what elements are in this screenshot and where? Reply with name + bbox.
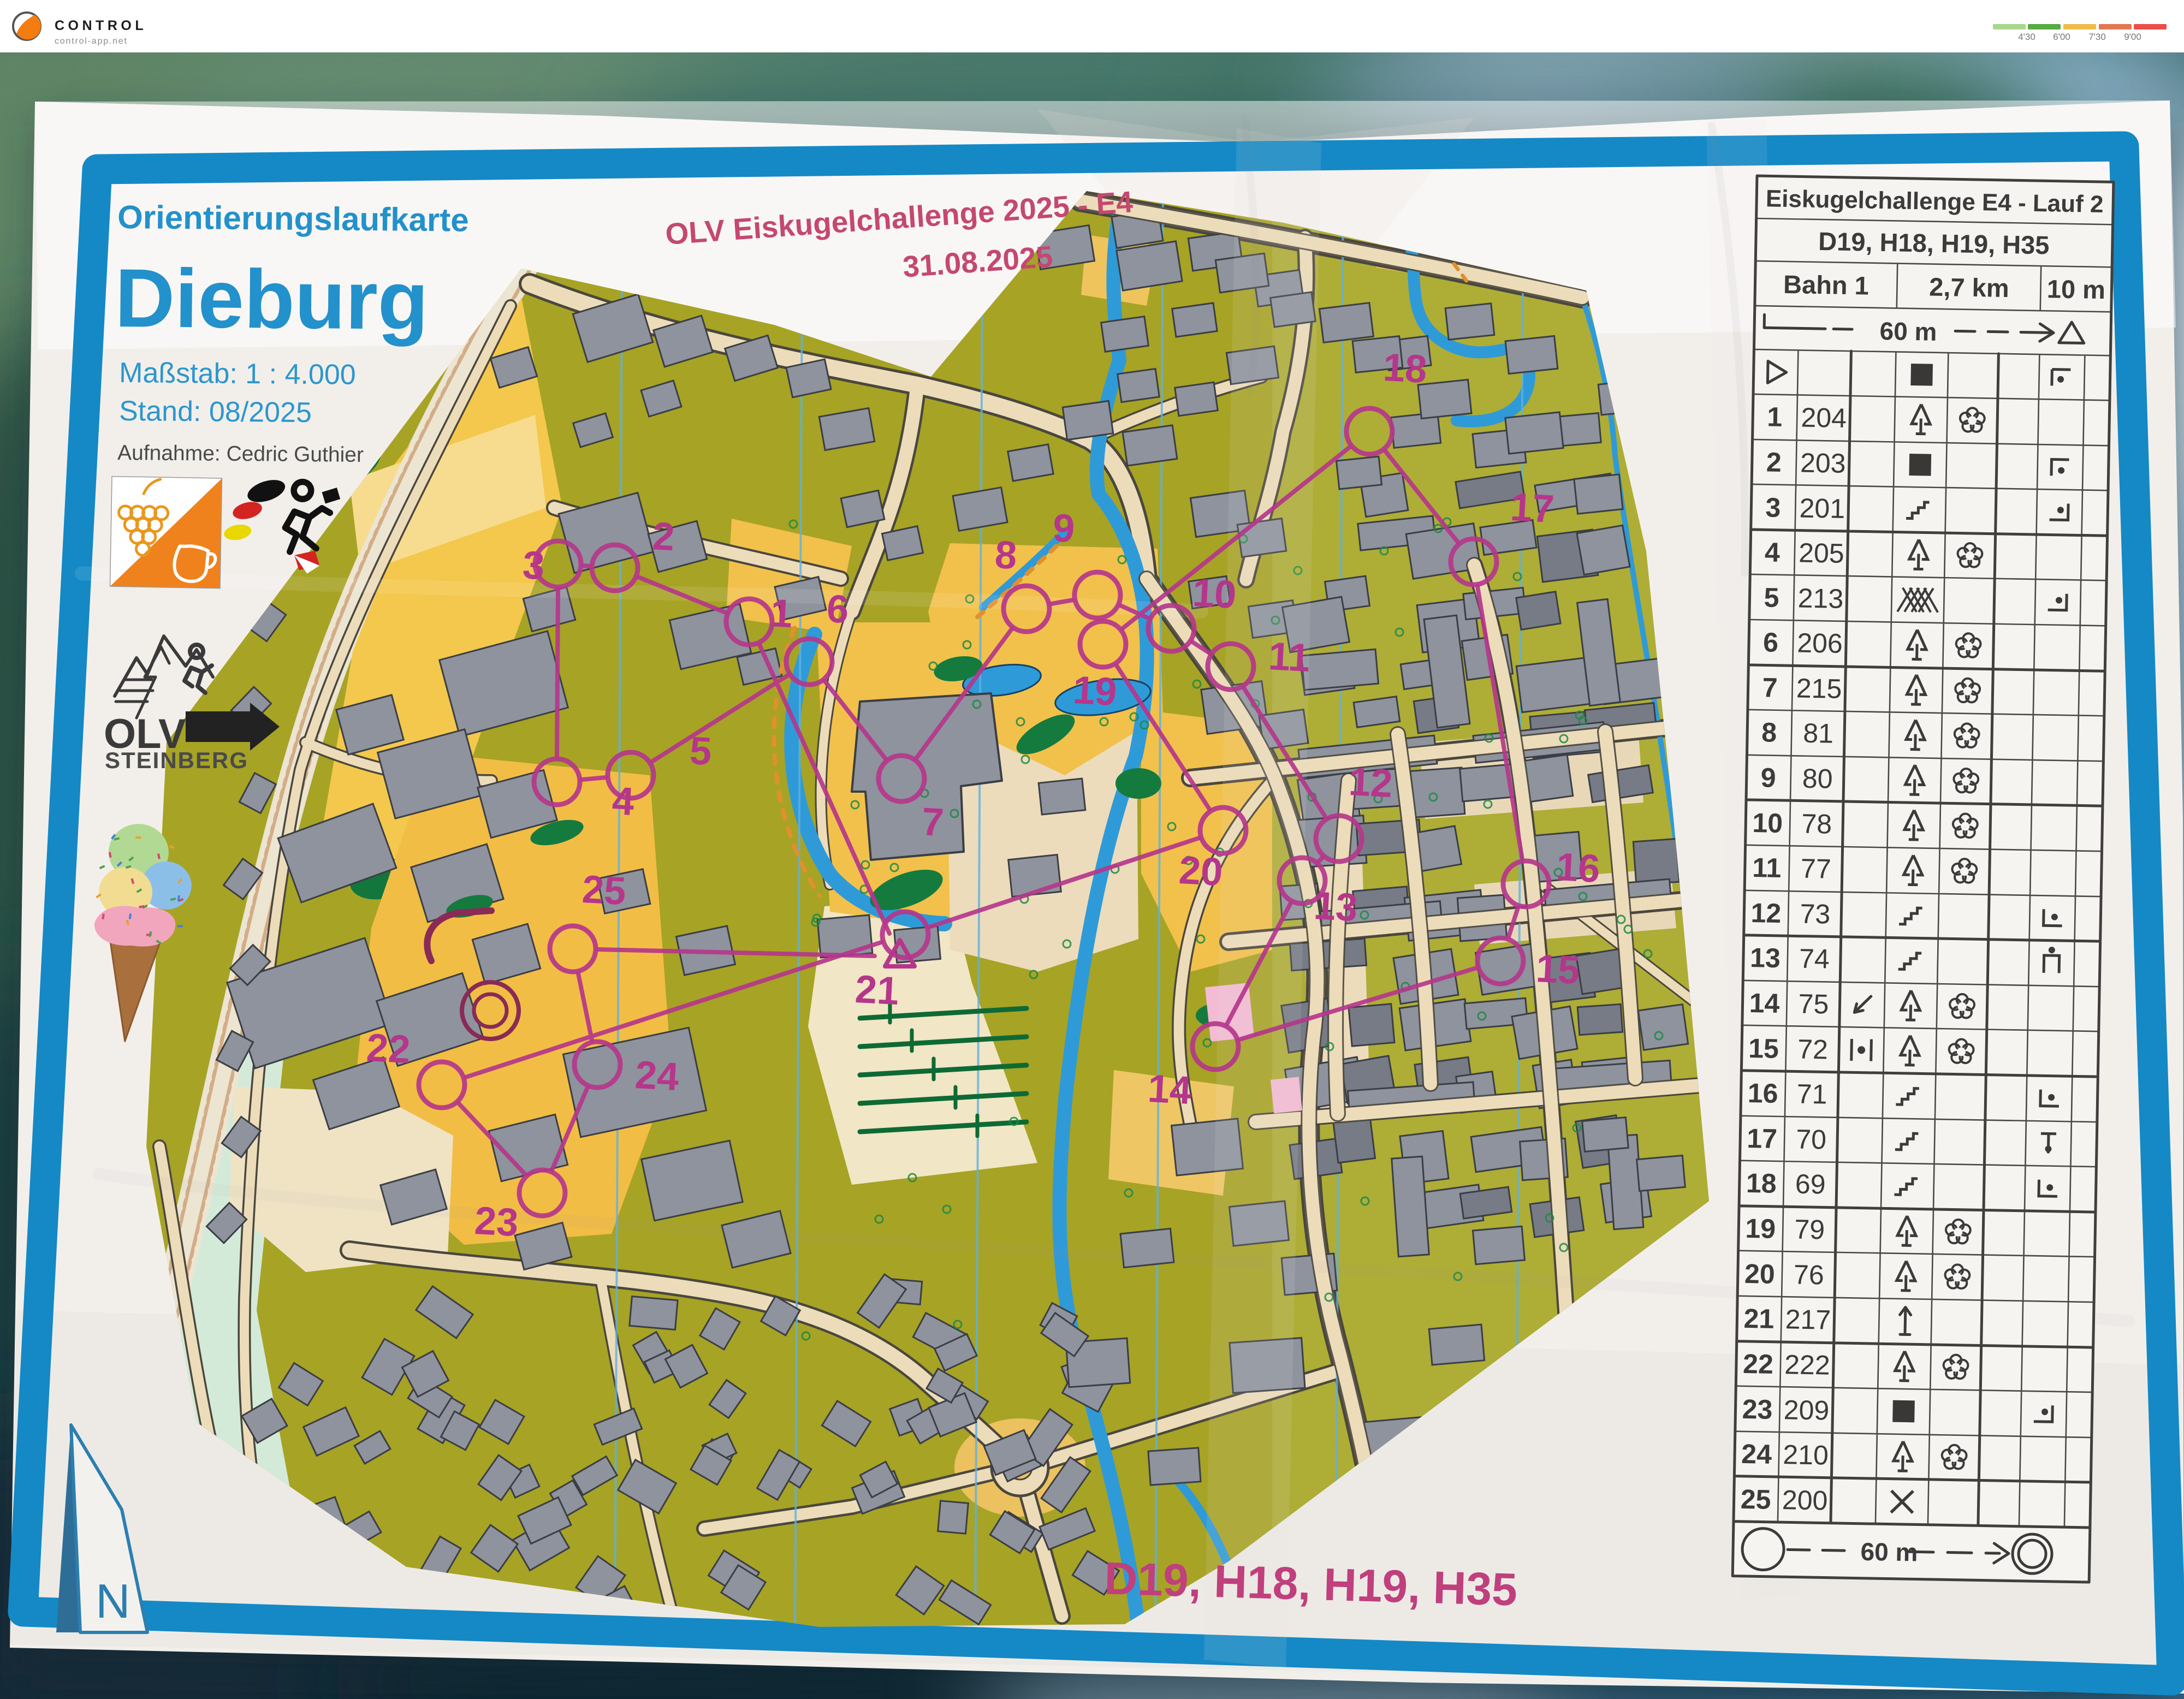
svg-text:Dieburg: Dieburg: [115, 252, 429, 347]
svg-text:213: 213: [1797, 583, 1843, 614]
svg-text:70: 70: [1796, 1124, 1827, 1155]
svg-text:21: 21: [854, 967, 900, 1013]
svg-text:75: 75: [1798, 989, 1829, 1020]
svg-text:9: 9: [1052, 506, 1076, 551]
svg-text:13: 13: [1313, 884, 1358, 930]
svg-text:N: N: [96, 1574, 130, 1628]
svg-text:6'00: 6'00: [2053, 32, 2070, 42]
svg-text:15: 15: [1748, 1033, 1779, 1064]
svg-text:23: 23: [473, 1199, 519, 1245]
svg-text:Orientierungslaufkarte: Orientierungslaufkarte: [117, 199, 469, 239]
svg-text:80: 80: [1802, 763, 1833, 794]
svg-text:7: 7: [1762, 672, 1778, 703]
svg-text:8: 8: [994, 533, 1018, 578]
svg-text:203: 203: [1800, 447, 1846, 478]
svg-text:17: 17: [1747, 1123, 1778, 1154]
svg-text:79: 79: [1794, 1214, 1825, 1245]
svg-text:24: 24: [634, 1053, 680, 1099]
svg-text:5: 5: [1764, 582, 1779, 613]
svg-text:Stand: 08/2025: Stand: 08/2025: [119, 395, 312, 429]
svg-text:72: 72: [1797, 1034, 1829, 1065]
svg-text:204: 204: [1801, 402, 1847, 433]
svg-text:10: 10: [1191, 571, 1237, 617]
svg-text:11: 11: [1267, 634, 1311, 680]
svg-text:14: 14: [1147, 1067, 1192, 1113]
svg-text:210: 210: [1783, 1439, 1829, 1470]
svg-text:69: 69: [1795, 1169, 1826, 1200]
svg-text:22: 22: [365, 1026, 411, 1072]
svg-text:78: 78: [1801, 809, 1832, 840]
svg-text:control-app.net: control-app.net: [55, 37, 128, 46]
svg-text:11: 11: [1752, 852, 1782, 883]
svg-text:12: 12: [1348, 760, 1393, 806]
svg-text:71: 71: [1796, 1079, 1827, 1110]
svg-text:5: 5: [689, 729, 713, 774]
svg-text:17: 17: [1509, 485, 1555, 531]
svg-text:3: 3: [521, 543, 545, 588]
svg-text:6: 6: [826, 587, 850, 632]
svg-text:201: 201: [1799, 492, 1845, 524]
svg-text:215: 215: [1796, 673, 1842, 704]
svg-text:3: 3: [1765, 492, 1781, 522]
svg-text:21: 21: [1743, 1303, 1775, 1334]
svg-text:4: 4: [611, 779, 635, 824]
svg-text:19: 19: [1072, 668, 1118, 714]
svg-text:217: 217: [1785, 1304, 1831, 1335]
svg-text:7'30: 7'30: [2088, 32, 2106, 42]
svg-text:CONTROL: CONTROL: [55, 18, 147, 33]
svg-text:4: 4: [1765, 537, 1781, 567]
svg-text:81: 81: [1803, 718, 1834, 749]
svg-text:25: 25: [581, 868, 627, 913]
svg-text:14: 14: [1749, 988, 1780, 1019]
svg-text:Aufnahme: Cedric Guthier: Aufnahme: Cedric Guthier: [117, 441, 364, 467]
svg-text:19: 19: [1745, 1213, 1776, 1244]
svg-text:24: 24: [1741, 1439, 1772, 1470]
svg-text:7: 7: [921, 800, 945, 845]
svg-text:2: 2: [651, 514, 675, 559]
svg-text:74: 74: [1799, 943, 1830, 975]
svg-text:206: 206: [1797, 627, 1843, 658]
svg-text:77: 77: [1801, 853, 1832, 884]
svg-text:222: 222: [1784, 1349, 1830, 1380]
svg-text:4'30: 4'30: [2018, 32, 2035, 42]
svg-text:18: 18: [1382, 346, 1428, 391]
svg-text:2: 2: [1766, 447, 1782, 477]
svg-text:8: 8: [1761, 717, 1777, 747]
svg-text:Bahn 1: Bahn 1: [1783, 270, 1870, 300]
svg-text:16: 16: [1747, 1078, 1778, 1109]
svg-text:2,7 km: 2,7 km: [1929, 272, 2009, 303]
svg-text:13: 13: [1750, 942, 1781, 973]
svg-text:9'00: 9'00: [2124, 32, 2141, 42]
svg-text:200: 200: [1782, 1484, 1827, 1516]
svg-text:76: 76: [1794, 1259, 1825, 1290]
svg-text:205: 205: [1799, 537, 1844, 568]
svg-text:STEINBERG: STEINBERG: [105, 747, 248, 773]
svg-text:Maßstab: 1 : 4.000: Maßstab: 1 : 4.000: [119, 357, 356, 391]
svg-text:1: 1: [769, 591, 793, 636]
svg-text:15: 15: [1535, 947, 1581, 993]
svg-text:73: 73: [1800, 899, 1831, 930]
svg-text:1: 1: [1767, 401, 1783, 432]
svg-text:60 m: 60 m: [1879, 317, 1937, 346]
svg-text:18: 18: [1746, 1168, 1777, 1199]
svg-text:25: 25: [1740, 1484, 1771, 1515]
svg-text:10: 10: [1752, 807, 1783, 839]
svg-text:20: 20: [1178, 848, 1224, 894]
svg-text:16: 16: [1555, 845, 1601, 891]
svg-text:20: 20: [1744, 1258, 1776, 1290]
svg-text:22: 22: [1743, 1348, 1774, 1380]
svg-text:209: 209: [1783, 1394, 1829, 1425]
svg-text:12: 12: [1750, 898, 1782, 929]
svg-text:9: 9: [1760, 762, 1776, 793]
svg-text:D19, H18, H19, H35: D19, H18, H19, H35: [1818, 227, 2050, 259]
svg-text:23: 23: [1742, 1394, 1773, 1425]
svg-text:6: 6: [1763, 627, 1779, 657]
svg-text:10 m: 10 m: [2046, 274, 2105, 304]
